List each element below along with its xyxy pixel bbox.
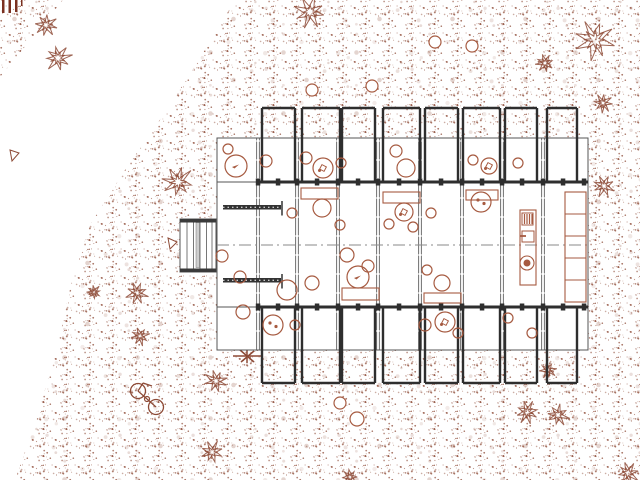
- building-plan: [217, 138, 588, 350]
- round-shrub: [334, 397, 346, 409]
- edge-mark: [21, 0, 23, 6]
- round-shrub: [466, 40, 478, 52]
- round-shrub: [306, 84, 318, 96]
- round-shrub: [366, 80, 378, 92]
- edge-mark: [9, 0, 12, 13]
- edge-mark: [2, 0, 5, 13]
- entry-deck: [180, 219, 216, 272]
- edge-mark: [15, 0, 18, 12]
- floor-plan-drawing: [0, 0, 640, 480]
- building-outline: [217, 138, 588, 350]
- round-shrub: [429, 36, 441, 48]
- round-shrub: [350, 412, 364, 426]
- site-plan-viewport: [0, 0, 640, 480]
